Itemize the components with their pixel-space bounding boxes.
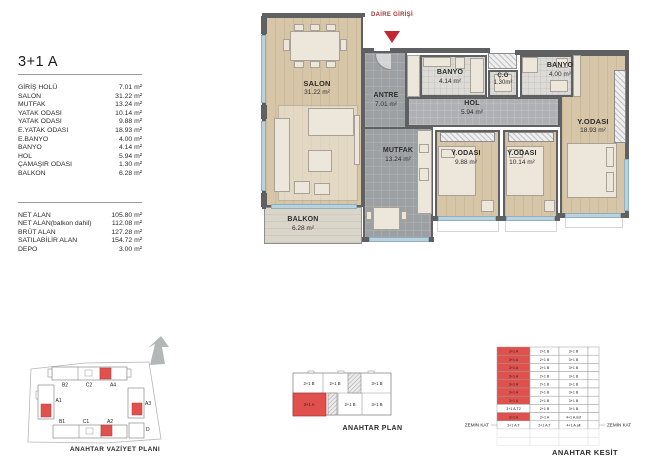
unit-label: 3+1 B bbox=[371, 402, 382, 407]
section-cell-label: 2+1 B bbox=[540, 391, 550, 395]
north-arrow-icon bbox=[148, 336, 169, 365]
section-cell-label: 3+1 A bbox=[509, 383, 519, 387]
section-cell-label: 3+1 B bbox=[569, 391, 579, 395]
entrance-arrow-icon bbox=[384, 31, 400, 43]
balcony-slab bbox=[505, 220, 557, 232]
balcony-slab bbox=[565, 217, 623, 228]
tv-unit bbox=[354, 115, 360, 165]
section-cell-label: 2+1 A.T bbox=[538, 424, 551, 428]
area-row-value: 9.88 m² bbox=[119, 118, 142, 127]
section-cell-label: 3+1 A bbox=[509, 350, 519, 354]
section-ghost-cell bbox=[559, 437, 588, 445]
armchair bbox=[294, 181, 310, 194]
section-cell bbox=[588, 355, 599, 363]
unit-label: 3+1 B bbox=[371, 381, 382, 386]
area-row-value: 6.28 m² bbox=[119, 170, 142, 179]
block-label: B2 bbox=[62, 383, 68, 389]
pillow bbox=[606, 172, 614, 192]
summary-row-value: 3.00 m² bbox=[119, 246, 142, 255]
area-row: ÇAMAŞIR ODASI 1.30 m² bbox=[18, 161, 142, 170]
area-row-label: SALON bbox=[18, 93, 41, 102]
floor-plan-sheet: 3+1 A GİRİŞ HOLÜ 7.01 m² SALON 31.22 m² … bbox=[0, 0, 660, 466]
exterior-wall bbox=[262, 13, 365, 17]
section-cell bbox=[588, 421, 599, 429]
block-label: C2 bbox=[86, 383, 93, 389]
divider bbox=[18, 202, 142, 203]
area-row-label: MUTFAK bbox=[18, 101, 46, 110]
block-label: B1 bbox=[59, 419, 65, 425]
area-row-label: BALKON bbox=[18, 170, 46, 179]
building-bump bbox=[48, 369, 52, 377]
site-plan-title: ANAHTAR VAZİYET PLANI bbox=[45, 446, 185, 453]
area-row-label: GİRİŞ HOLÜ bbox=[18, 84, 57, 93]
summary-row-label: NET ALAN bbox=[18, 212, 51, 221]
exterior-wall bbox=[515, 50, 629, 55]
section-cell-label: 2+1 B bbox=[540, 350, 550, 354]
section-ghost-cell bbox=[497, 429, 530, 437]
area-row: GİRİŞ HOLÜ 7.01 m² bbox=[18, 84, 142, 93]
area-row-label: E.BANYO bbox=[18, 136, 48, 145]
chair bbox=[310, 61, 320, 68]
kitchen-table bbox=[373, 207, 400, 230]
elevator-core bbox=[348, 373, 361, 393]
highlight-unit bbox=[100, 368, 111, 379]
section-cell-label: 3+1 B bbox=[569, 350, 579, 354]
chair bbox=[340, 39, 347, 51]
area-row: YATAK ODASI 9.88 m² bbox=[18, 118, 142, 127]
dining-table bbox=[290, 31, 340, 61]
block-label: A4 bbox=[110, 383, 116, 389]
bath-sink bbox=[550, 80, 568, 92]
section-cell bbox=[588, 347, 599, 355]
section-cell-label: 3+1 A.T2 bbox=[506, 407, 521, 411]
summary-row-label: DEPO bbox=[18, 246, 37, 255]
section-ghost-cell bbox=[588, 437, 599, 445]
summary-row-value: 112.08 m² bbox=[112, 220, 142, 229]
window bbox=[439, 217, 495, 220]
window bbox=[625, 160, 628, 210]
unit-label-highlight: 3+1 A bbox=[304, 402, 315, 407]
section-cell-label: 3+1 B bbox=[569, 383, 579, 387]
block-label: D bbox=[146, 427, 150, 433]
section-ghost-cell bbox=[588, 429, 599, 437]
key-plan-drawing: 2+1 B 2+1 B 3+1 B 3+1 A 2+1 B 3+1 B bbox=[288, 368, 408, 420]
key-section-drawing: ZEMİN KAT ZEMİN KAT 3+1 A2+1 B3+1 B3+1 A… bbox=[430, 344, 645, 450]
building-core bbox=[85, 370, 92, 376]
section-cell-label: 2+1 B bbox=[540, 358, 550, 362]
room-area-table: GİRİŞ HOLÜ 7.01 m² SALON 31.22 m² MUTFAK… bbox=[18, 84, 142, 179]
window bbox=[370, 238, 428, 241]
plan-notch bbox=[308, 371, 314, 373]
apartment-floor-plan: DAİRE GİRİŞİ bbox=[250, 10, 642, 256]
nightstand bbox=[481, 200, 494, 212]
section-cell-label: 3+1 B bbox=[569, 407, 579, 411]
unit-type-title: 3+1 A bbox=[18, 54, 142, 70]
area-row-label: YATAK ODASI bbox=[18, 110, 62, 119]
section-cell-label: 2+1 A bbox=[540, 415, 550, 419]
toilet bbox=[455, 57, 465, 69]
armchair bbox=[314, 183, 330, 195]
block-label: A3 bbox=[145, 401, 151, 407]
summary-row: SATILABİLİR ALAN 154.72 m² bbox=[18, 237, 142, 246]
block-label: A2 bbox=[107, 419, 113, 425]
chair bbox=[294, 61, 304, 68]
window bbox=[272, 205, 356, 208]
key-section-title: ANAHTAR KESİT bbox=[520, 448, 650, 457]
area-row: HOL 5.94 m² bbox=[18, 153, 142, 162]
window bbox=[566, 214, 620, 217]
summary-table: NET ALAN 105.80 m² NET ALAN(balkon dahil… bbox=[18, 212, 142, 255]
wall-pier bbox=[261, 193, 267, 207]
section-cell bbox=[588, 380, 599, 388]
area-row: E.BANYO 4.00 m² bbox=[18, 136, 142, 145]
area-row: SALON 31.22 m² bbox=[18, 93, 142, 102]
area-row-value: 4.00 m² bbox=[119, 136, 142, 145]
exterior-wall bbox=[390, 48, 490, 53]
sofa-l bbox=[274, 118, 290, 192]
section-cell-label: 4+1 A.alt bbox=[566, 424, 580, 428]
chair bbox=[283, 39, 290, 51]
chair bbox=[326, 61, 336, 68]
section-cell bbox=[588, 396, 599, 404]
wall-pier bbox=[261, 105, 267, 119]
unit-label: 2+1 B bbox=[329, 381, 340, 386]
summary-row: DEPO 3.00 m² bbox=[18, 246, 142, 255]
bath-counter bbox=[423, 57, 451, 67]
area-row-value: 31.22 m² bbox=[115, 93, 142, 102]
building-bump bbox=[127, 369, 131, 377]
section-cell-label: 3+1 A bbox=[509, 366, 519, 370]
section-cell-label: 2+1 B bbox=[540, 399, 550, 403]
section-ghost-cell bbox=[559, 429, 588, 437]
shaft bbox=[488, 53, 517, 69]
room-label-salon: SALON31.22 m² bbox=[287, 80, 347, 97]
summary-row-label: NET ALAN(balkon dahil) bbox=[18, 220, 92, 229]
area-row-value: 10.14 m² bbox=[115, 110, 142, 119]
coffee-table bbox=[308, 150, 332, 172]
ground-floor-label-left: ZEMİN KAT bbox=[465, 422, 489, 428]
area-row: YATAK ODASI 10.14 m² bbox=[18, 110, 142, 119]
area-row-value: 5.94 m² bbox=[119, 153, 142, 162]
wardrobe bbox=[440, 132, 495, 142]
window bbox=[507, 217, 554, 220]
section-cell-label: 2+1 B bbox=[540, 374, 550, 378]
room-label-yodasi1: Y.ODASI9.88 m² bbox=[438, 150, 494, 167]
building-core bbox=[86, 428, 93, 434]
area-row-label: HOL bbox=[18, 153, 32, 162]
plan-notch bbox=[368, 371, 374, 373]
area-row-value: 13.24 m² bbox=[115, 101, 142, 110]
area-row-value: 7.01 m² bbox=[119, 84, 142, 93]
ground-floor-label-right: ZEMİN KAT bbox=[607, 422, 631, 428]
balcony-slab bbox=[437, 220, 499, 232]
chair bbox=[310, 24, 320, 31]
chair bbox=[401, 211, 407, 220]
section-cell-label: 2+1 B bbox=[540, 383, 550, 387]
plan-notch bbox=[338, 371, 344, 373]
window bbox=[262, 36, 265, 102]
summary-row-value: 127.28 m² bbox=[111, 229, 142, 238]
section-cell bbox=[588, 404, 599, 412]
window bbox=[262, 122, 265, 190]
highlight-unit bbox=[132, 403, 142, 415]
pillow bbox=[606, 147, 614, 167]
area-row-value: 1.30 m² bbox=[119, 161, 142, 170]
summary-row-value: 105.80 m² bbox=[111, 212, 142, 221]
section-cell-label: 3+1 A bbox=[509, 358, 519, 362]
section-cell-label: 3+1 B bbox=[569, 374, 579, 378]
area-row-label: E.YATAK ODASI bbox=[18, 127, 68, 136]
key-plan-title: ANAHTAR PLAN bbox=[330, 425, 415, 432]
area-row-label: BANYO bbox=[18, 144, 42, 153]
section-cell-label: 3+1 B bbox=[569, 366, 579, 370]
section-cell bbox=[588, 388, 599, 396]
area-row-label: ÇAMAŞIR ODASI bbox=[18, 161, 72, 170]
summary-row: NET ALAN(balkon dahil) 112.08 m² bbox=[18, 220, 142, 229]
summary-row-label: SATILABİLİR ALAN bbox=[18, 237, 77, 246]
block-label: A1 bbox=[56, 398, 62, 404]
section-cell bbox=[588, 413, 599, 421]
wardrobe bbox=[508, 132, 554, 142]
entry-closet bbox=[407, 55, 420, 97]
section-cell-label: 4+1 A.üst bbox=[566, 415, 581, 419]
area-row-label: YATAK ODASI bbox=[18, 118, 62, 127]
section-cell-label: 3+1 A bbox=[509, 391, 519, 395]
section-cell-label: 3+1 B bbox=[569, 358, 579, 362]
section-ghost-cell bbox=[497, 437, 530, 445]
room-label-banyo2: BANYO4.00 m² bbox=[532, 62, 588, 79]
room-label-camasir: Ç.O1.30m² bbox=[486, 73, 520, 87]
section-cell-label: 3+1 B bbox=[569, 399, 579, 403]
highlight-unit bbox=[101, 425, 112, 436]
unit-label: 2+1 B bbox=[303, 381, 314, 386]
room-label-eyodasi: Y.ODASI18.93 m² bbox=[563, 118, 623, 135]
sofa bbox=[308, 108, 354, 136]
nightstand bbox=[544, 200, 555, 212]
stair-core bbox=[328, 393, 337, 415]
section-cell-label: 2+1 B bbox=[540, 407, 550, 411]
section-cell-label: 3+1 A bbox=[509, 399, 519, 403]
section-cell-label: 2+1 B bbox=[540, 366, 550, 370]
unit-label: 2+1 B bbox=[344, 402, 355, 407]
entrance-label: DAİRE GİRİŞİ bbox=[368, 12, 416, 20]
chair bbox=[294, 24, 304, 31]
divider bbox=[18, 74, 142, 75]
section-cell-label: 3+1 A.T bbox=[507, 424, 520, 428]
section-cell-label: 3+1 A bbox=[509, 374, 519, 378]
stove bbox=[419, 168, 429, 181]
building-bump bbox=[36, 391, 38, 399]
section-ghost-cell bbox=[530, 437, 559, 445]
summary-row-value: 154.72 m² bbox=[111, 237, 142, 246]
summary-row: NET ALAN 105.80 m² bbox=[18, 212, 142, 221]
area-row: BALKON 6.28 m² bbox=[18, 170, 142, 179]
room-label-hol: HOL5.94 m² bbox=[442, 100, 502, 117]
section-cell bbox=[588, 363, 599, 371]
unit-info-panel: 3+1 A GİRİŞ HOLÜ 7.01 m² SALON 31.22 m² … bbox=[18, 54, 142, 255]
section-ghost-cell bbox=[530, 429, 559, 437]
area-row: BANYO 4.14 m² bbox=[18, 144, 142, 153]
room-label-mutfak: MUTFAK13.24 m² bbox=[368, 147, 428, 164]
area-row: MUTFAK 13.24 m² bbox=[18, 101, 142, 110]
block-label: C1 bbox=[83, 419, 90, 425]
chair bbox=[326, 24, 336, 31]
building-block bbox=[129, 423, 144, 438]
area-row-value: 4.14 m² bbox=[119, 144, 142, 153]
chair bbox=[366, 211, 372, 220]
room-label-antre: ANTRE7.01 m² bbox=[362, 92, 410, 109]
section-cell-label: 3+1 A bbox=[509, 415, 519, 419]
room-label-yodasi2: Y.ODASI10.14 m² bbox=[494, 150, 550, 167]
room-label-banyo1: BANYO4.14 m² bbox=[424, 69, 476, 86]
section-cell bbox=[588, 372, 599, 380]
highlight-unit bbox=[41, 404, 51, 417]
area-row: E.YATAK ODASI 18.93 m² bbox=[18, 127, 142, 136]
area-row-value: 18.93 m² bbox=[115, 127, 142, 136]
exterior-wall bbox=[362, 48, 374, 53]
room-label-balkon: BALKON6.28 m² bbox=[273, 216, 333, 233]
wall-pier bbox=[261, 16, 267, 34]
